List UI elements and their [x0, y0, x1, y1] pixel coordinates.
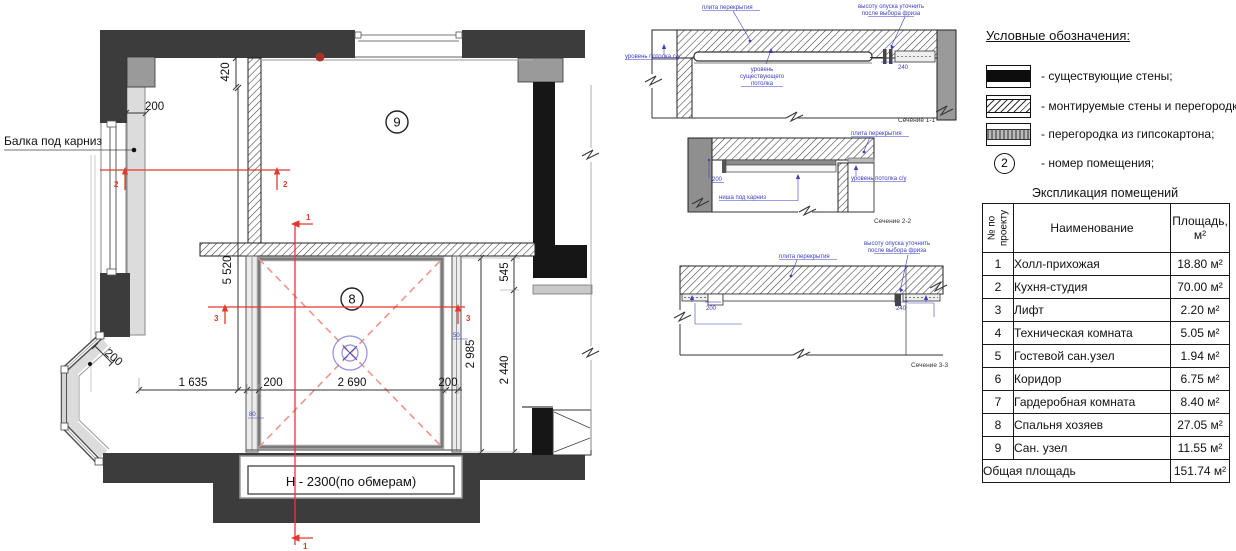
legend-item-mounted-walls: - монтируемые стены и перегородки;: [986, 93, 1236, 119]
svg-text:8: 8: [348, 292, 355, 307]
dim-200-bay: 200: [102, 347, 124, 369]
svg-text:9: 9: [393, 115, 400, 130]
dim-50: 50: [453, 333, 460, 339]
beam-label: Балка под карниз: [4, 134, 103, 148]
existing-walls-swatch: [986, 65, 1031, 88]
row-num: 3: [983, 299, 1014, 322]
legend-item-drywall-partition: - перегородка из гипсокартона;: [986, 121, 1214, 147]
room-number-symbol: 2: [994, 153, 1015, 174]
drop-note-line2: после выбора фриза: [868, 248, 927, 254]
partition-mounted-horizontal: [200, 243, 535, 256]
row-num: 5: [983, 345, 1014, 368]
table-row: 9 Сан. узел 11.55 м²: [983, 437, 1230, 460]
section-mark-2: 2: [114, 180, 119, 189]
section-2-2-title: Сечение 2-2: [874, 218, 912, 225]
col-header-area: Площадь, м²: [1171, 204, 1230, 253]
section-mark-1: 1: [303, 542, 308, 551]
row-area: 6.75 м²: [1171, 368, 1230, 391]
row-name: Лифт: [1014, 299, 1171, 322]
section-1-1-title: Сечение 1-1: [898, 117, 936, 124]
section-2-2: 200 ниша под карниз плита перекрытия уро…: [688, 131, 912, 225]
col-header-num: № по проекту: [987, 204, 1010, 252]
legend-item-label: - перегородка из гипсокартона;: [1041, 127, 1214, 141]
row-area: 70.00 м²: [1171, 276, 1230, 299]
row-num: 6: [983, 368, 1014, 391]
legend: Условные обозначения: - существующие сте…: [986, 28, 1236, 43]
room-schedule-table: № по проекту Наименование Площадь, м² 1 …: [982, 203, 1230, 483]
dim-2690: 2 690: [338, 377, 367, 389]
dim-200: 200: [712, 177, 723, 183]
col-header-name: Наименование: [1014, 204, 1171, 253]
partition-mounted-vertical: [248, 58, 261, 243]
row-name: Техническая комната: [1014, 322, 1171, 345]
room-number-9: 9: [386, 111, 408, 133]
table-row: 8 Спальня хозяев 27.05 м²: [983, 414, 1230, 437]
row-area: 27.05 м²: [1171, 414, 1230, 437]
row-name: Кухня-студия: [1014, 276, 1171, 299]
dim-1635: 1 635: [179, 377, 208, 389]
room-number-symbol-value: 2: [1001, 156, 1008, 170]
dim-80: 80: [249, 412, 256, 418]
row-area: 5.05 м²: [1171, 322, 1230, 345]
window-left: [101, 121, 126, 275]
slab-label: плита перекрытия: [702, 5, 753, 11]
mounted-walls-swatch: [986, 95, 1031, 118]
dim-5520: 5 520: [222, 256, 234, 285]
table-row: 6 Коридор 6.75 м²: [983, 368, 1230, 391]
section-3-3-title: Сечение 3-3: [911, 362, 949, 369]
slab-label: плита перекрытия: [851, 131, 902, 137]
table-header-row: № по проекту Наименование Площадь, м²: [983, 204, 1230, 253]
slab-label: плита перекрытия: [779, 254, 830, 260]
dim-240: 240: [898, 65, 909, 71]
cornice-niche: [708, 294, 723, 305]
dim-200-top: 200: [145, 101, 164, 113]
drop-note-line2: после выбора фриза: [862, 11, 921, 17]
table-row: 5 Гостевой сан.узел 1.94 м²: [983, 345, 1230, 368]
section-mark-2: 2: [283, 180, 288, 189]
legend-item-existing-walls: - существующие стены;: [986, 63, 1173, 89]
table-title: Экспликация помещений: [982, 186, 1228, 200]
cornice-profile: [694, 52, 872, 61]
total-area: 151.74 м²: [1171, 460, 1230, 483]
window-top: [355, 30, 462, 58]
row-num: 9: [983, 437, 1014, 460]
section-mark-3: 3: [214, 314, 219, 323]
red-marker-dot: [316, 53, 325, 62]
row-name: Спальня хозяев: [1014, 414, 1171, 437]
legend-item-room-number: 2 - номер помещения;: [986, 150, 1154, 176]
legend-item-label: - номер помещения;: [1041, 156, 1154, 170]
su-ceiling-label: уровень потолка с/у: [851, 176, 906, 182]
table-row: 7 Гардеробная комната 8.40 м²: [983, 391, 1230, 414]
pier-top-left: [127, 57, 155, 87]
row-name: Гостевой сан.узел: [1014, 345, 1171, 368]
drawing-canvas: Н - 2300(по обмерам) 9 8 420 200 5 520 1…: [0, 0, 1236, 551]
dim-420: 420: [220, 62, 232, 81]
row-name: Коридор: [1014, 368, 1171, 391]
drywall-partition-swatch: [986, 123, 1031, 146]
table-total-row: Общая площадь 151.74 м²: [983, 460, 1230, 483]
height-label: Н - 2300(по обмерам): [286, 474, 416, 489]
row-num: 1: [983, 253, 1014, 276]
section-mark-1: 1: [306, 213, 311, 222]
dim-545: 545: [499, 262, 511, 281]
dim-240: 240: [896, 306, 907, 312]
section-1-1: плита перекрытия высоту опуска уточнить …: [625, 4, 956, 124]
drop-note-line1: высоту опуска уточнить: [858, 4, 924, 10]
row-num: 8: [983, 414, 1014, 437]
exist-ceiling-label: потолка: [751, 81, 774, 87]
table-row: 2 Кухня-студия 70.00 м²: [983, 276, 1230, 299]
row-area: 1.94 м²: [1171, 345, 1230, 368]
section-mark-3: 3: [466, 314, 471, 323]
drop-note-line1: высоту опуска уточнить: [864, 241, 930, 247]
row-area: 2.20 м²: [1171, 299, 1230, 322]
row-name: Гардеробная комната: [1014, 391, 1171, 414]
row-area: 18.80 м²: [1171, 253, 1230, 276]
dim-200: 200: [706, 306, 717, 312]
dim-2985: 2 985: [465, 340, 477, 369]
section-3-3: плита перекрытия высоту опуска уточнить …: [674, 241, 949, 369]
row-num: 7: [983, 391, 1014, 414]
pier-top-right: [518, 58, 563, 82]
floor-plan: Н - 2300(по обмерам) 9 8 420 200 5 520 1…: [4, 30, 599, 551]
table-row: 3 Лифт 2.20 м²: [983, 299, 1230, 322]
legend-item-label: - существующие стены;: [1041, 69, 1173, 83]
row-area: 11.55 м²: [1171, 437, 1230, 460]
exist-ceiling-label: уровень: [751, 67, 774, 73]
row-name: Холл-прихожая: [1014, 253, 1171, 276]
row-num: 2: [983, 276, 1014, 299]
row-area: 8.40 м²: [1171, 391, 1230, 414]
exist-ceiling-label: существующего: [740, 74, 785, 80]
dim-200-right: 200: [438, 377, 457, 389]
walls-black-right: [532, 82, 587, 455]
row-name: Сан. узел: [1014, 437, 1171, 460]
su-ceiling-label: уровень потолка с/у: [625, 54, 680, 60]
cornice-niche-band: [726, 160, 836, 165]
legend-title: Условные обозначения:: [986, 28, 1236, 43]
total-label: Общая площадь: [983, 460, 1171, 483]
room-schedule: Экспликация помещений № по проекту Наиме…: [982, 186, 1228, 483]
table-row: 1 Холл-прихожая 18.80 м²: [983, 253, 1230, 276]
lift-door-symbol: [553, 410, 591, 455]
legend-item-label: - монтируемые стены и перегородки;: [1041, 99, 1236, 113]
dim-200-left: 200: [263, 377, 282, 389]
table-row: 4 Техническая комната 5.05 м²: [983, 322, 1230, 345]
row-num: 4: [983, 322, 1014, 345]
dim-2440: 2 440: [499, 356, 511, 385]
niche-label: ниша под карниз: [719, 195, 766, 201]
